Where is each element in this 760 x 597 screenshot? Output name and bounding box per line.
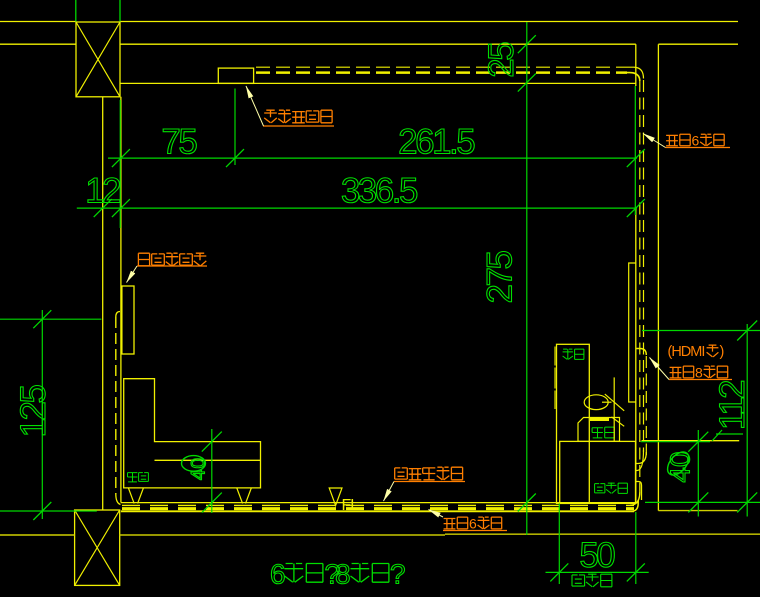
svg-text:125: 125 xyxy=(14,386,53,438)
svg-text:261.5: 261.5 xyxy=(398,123,474,162)
svg-text:8: 8 xyxy=(695,365,703,381)
svg-text:25: 25 xyxy=(482,43,521,78)
svg-text:FL: FL xyxy=(342,497,360,514)
svg-text:336.5: 336.5 xyxy=(341,172,417,211)
svg-text:40: 40 xyxy=(665,451,696,482)
svg-text:): ) xyxy=(720,344,725,360)
svg-text:6: 6 xyxy=(469,516,477,532)
svg-text:6: 6 xyxy=(270,559,286,590)
svg-text:8: 8 xyxy=(335,559,351,590)
svg-text:(HDMI: (HDMI xyxy=(668,344,705,360)
svg-text:50: 50 xyxy=(579,536,615,575)
svg-text:12: 12 xyxy=(85,172,120,211)
svg-text:6: 6 xyxy=(692,133,700,149)
svg-text:275: 275 xyxy=(481,252,520,304)
svg-text:?: ? xyxy=(390,559,406,590)
svg-text:112: 112 xyxy=(713,381,752,430)
svg-text:40: 40 xyxy=(189,457,210,480)
svg-text:75: 75 xyxy=(161,123,196,162)
